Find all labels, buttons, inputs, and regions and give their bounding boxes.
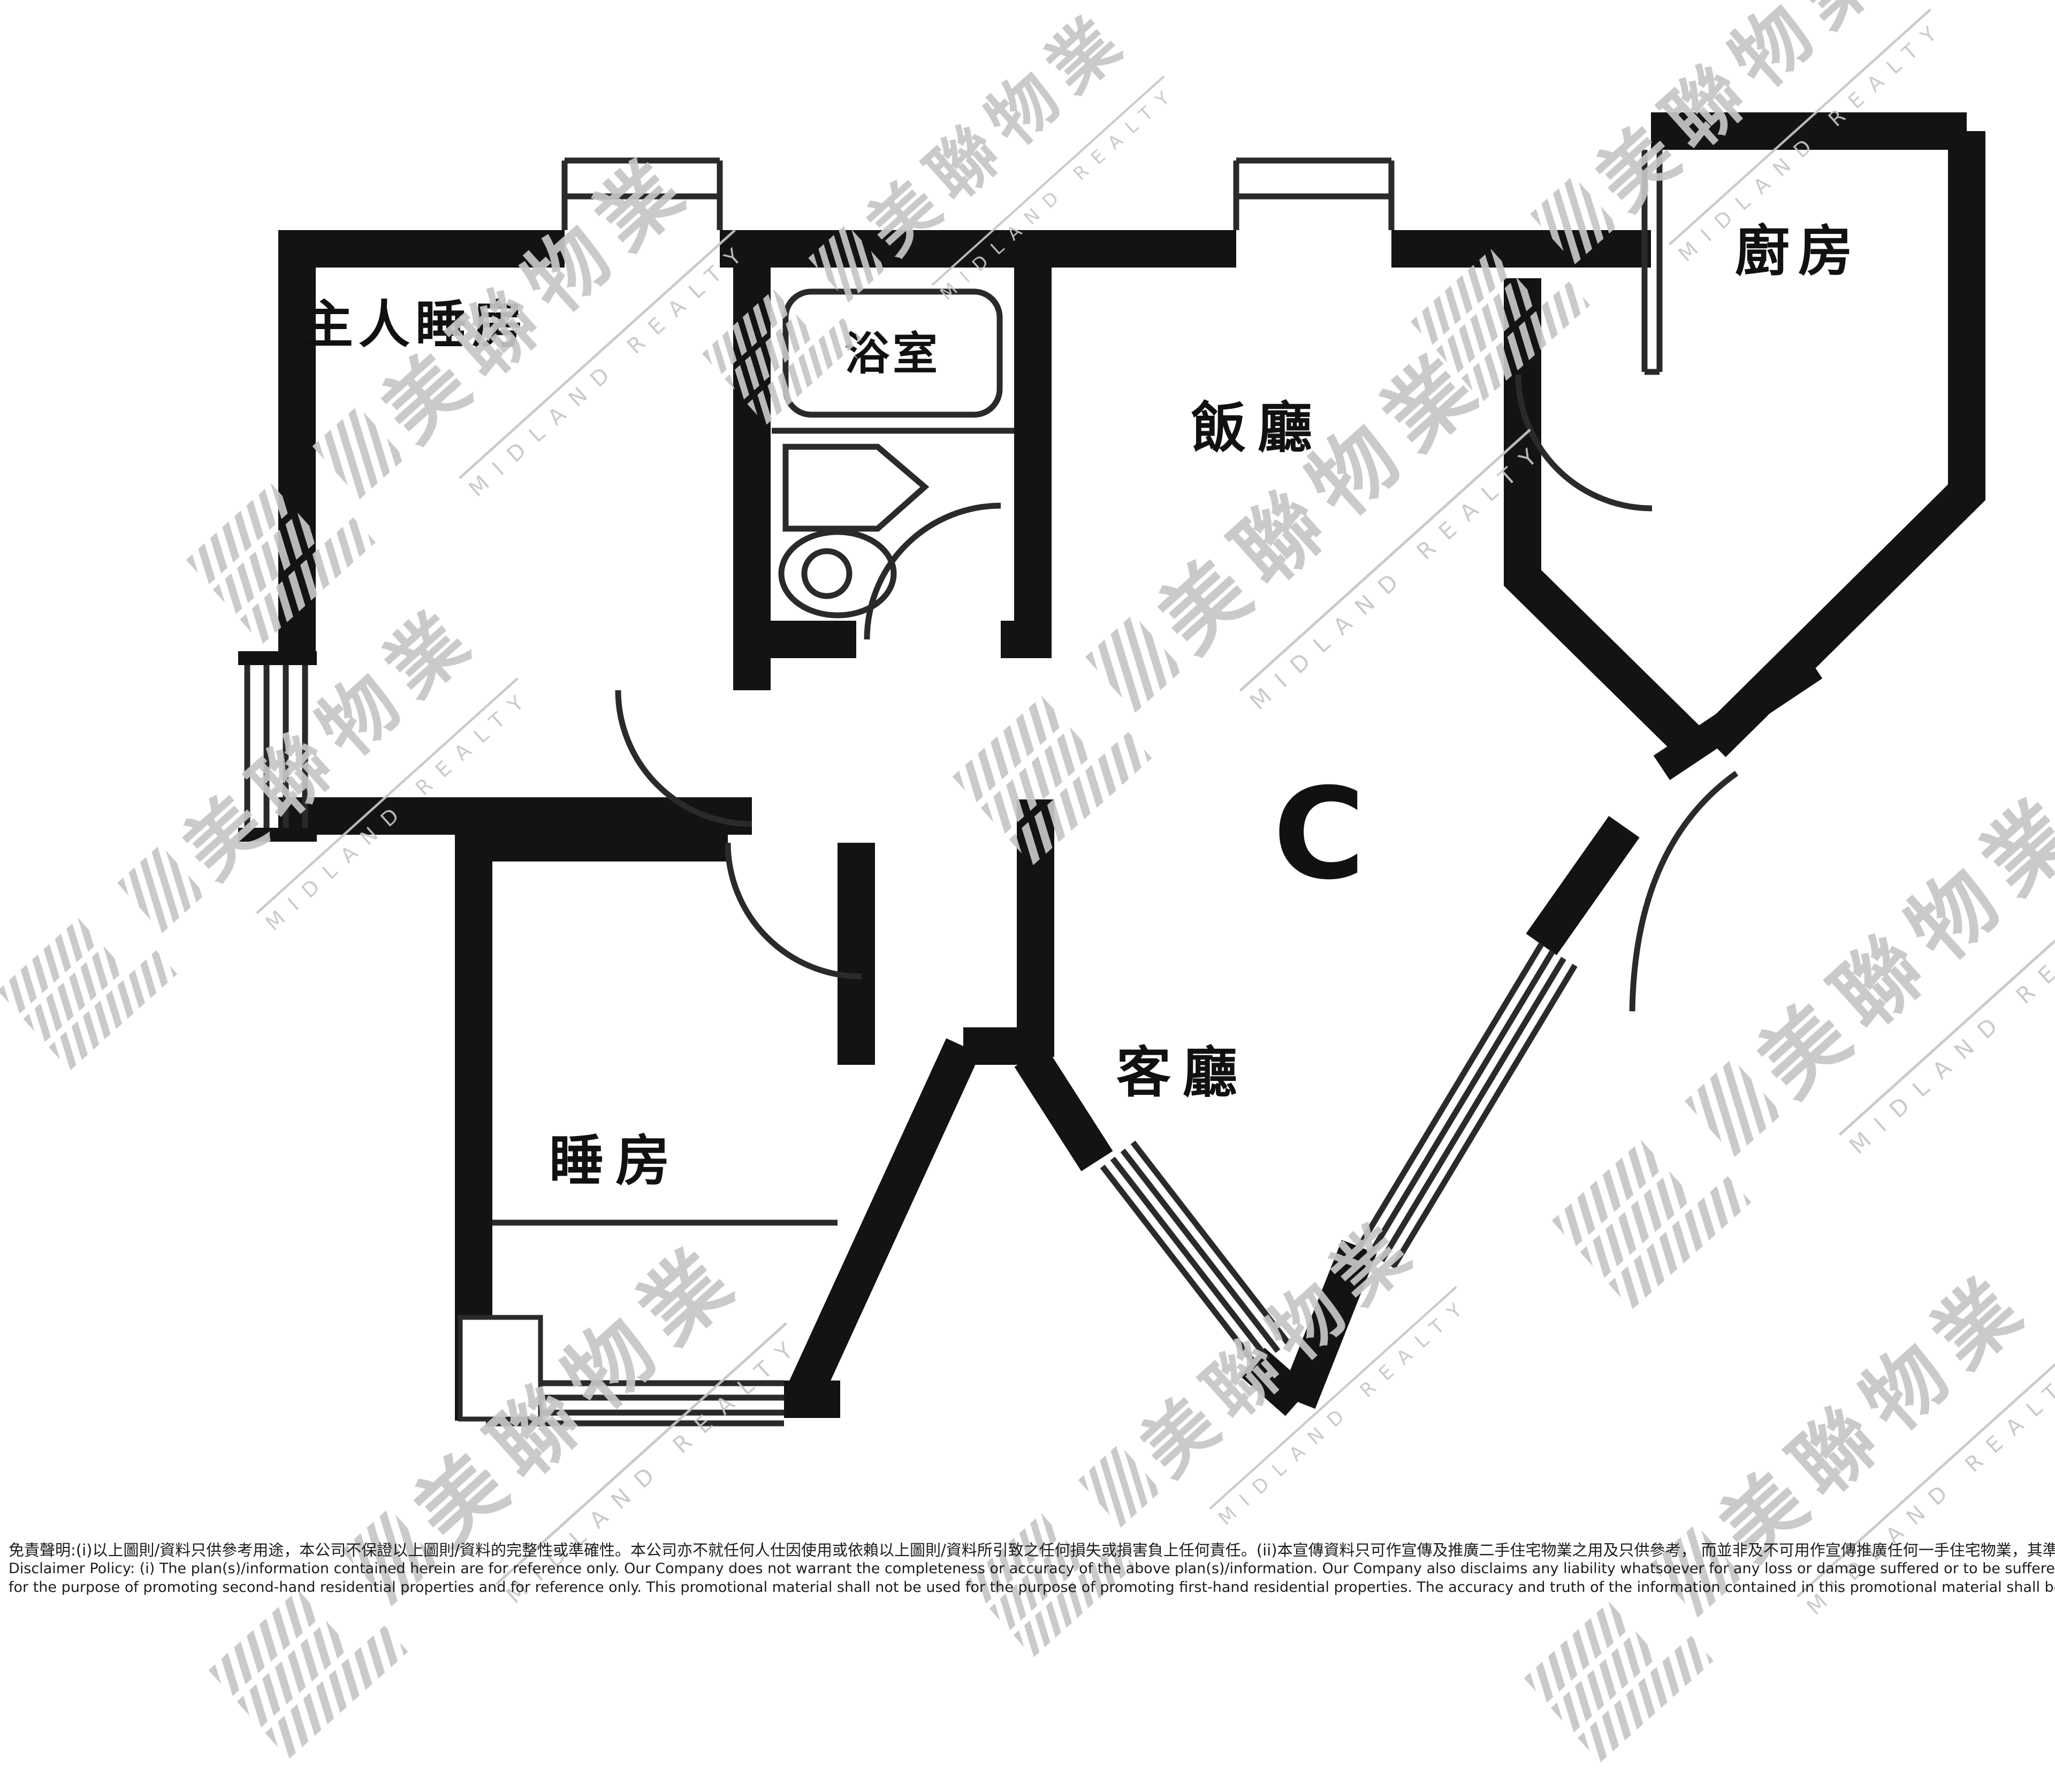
window-master-bedroom	[565, 161, 720, 230]
wall-tip	[1252, 1362, 1298, 1402]
wall-se-lower	[1298, 1247, 1359, 1402]
disclaimer-line-english-2: for the purpose of promoting second-hand…	[9, 1579, 2050, 1597]
basin-icon	[786, 447, 925, 529]
floorplan-page: 主人睡房 浴室 飯廳 廚房 C 客廳 睡房 美聯物業 MIDLAND REALT…	[0, 0, 2055, 1600]
window-kitchen-left	[1645, 150, 1660, 372]
wall-sw-upper	[1030, 1057, 1097, 1161]
door-arc-entrance	[1632, 773, 1737, 1011]
room-label-living: 客廳	[1116, 1041, 1249, 1105]
room-label-master-bedroom: 主人睡房	[302, 295, 529, 355]
disclaimer: 免責聲明:(i)以上圖則/資料只供參考用途，本公司不保證以上圖則/資料的完整性或…	[9, 1541, 2050, 1597]
room-label-dining: 飯廳	[1191, 396, 1324, 460]
room-label-kitchen: 廚房	[1735, 220, 1861, 284]
door-arc-bathroom	[867, 506, 1001, 639]
unit-letter: C	[1273, 761, 1365, 908]
toilet-icon	[781, 532, 894, 615]
room-label-bedroom: 睡房	[549, 1130, 682, 1193]
disclaimer-line-chinese: 免責聲明:(i)以上圖則/資料只供參考用途，本公司不保證以上圖則/資料的完整性或…	[9, 1541, 2050, 1560]
wall-dining-right-diagonal	[1523, 278, 1688, 741]
walls	[278, 131, 1967, 1421]
floorplan-canvas: 主人睡房 浴室 飯廳 廚房 C 客廳 睡房	[0, 0, 2055, 1600]
room-label-bathroom: 浴室	[844, 327, 941, 380]
window-band-se	[1359, 944, 1575, 1268]
toilet-seat-icon	[804, 551, 849, 596]
disclaimer-line-english-1: Disclaimer Policy: (i) The plan(s)/infor…	[9, 1560, 2050, 1578]
midland-logo-icon	[1524, 1576, 1714, 1763]
window-dining	[1236, 161, 1391, 230]
window-band-sw	[1102, 1142, 1288, 1367]
window-bedroom-corner-box	[460, 1317, 541, 1419]
wall-se-upper	[1541, 827, 1624, 944]
bay-window-master-bedroom	[238, 658, 317, 835]
window-bedroom-bottom	[460, 1223, 838, 1423]
